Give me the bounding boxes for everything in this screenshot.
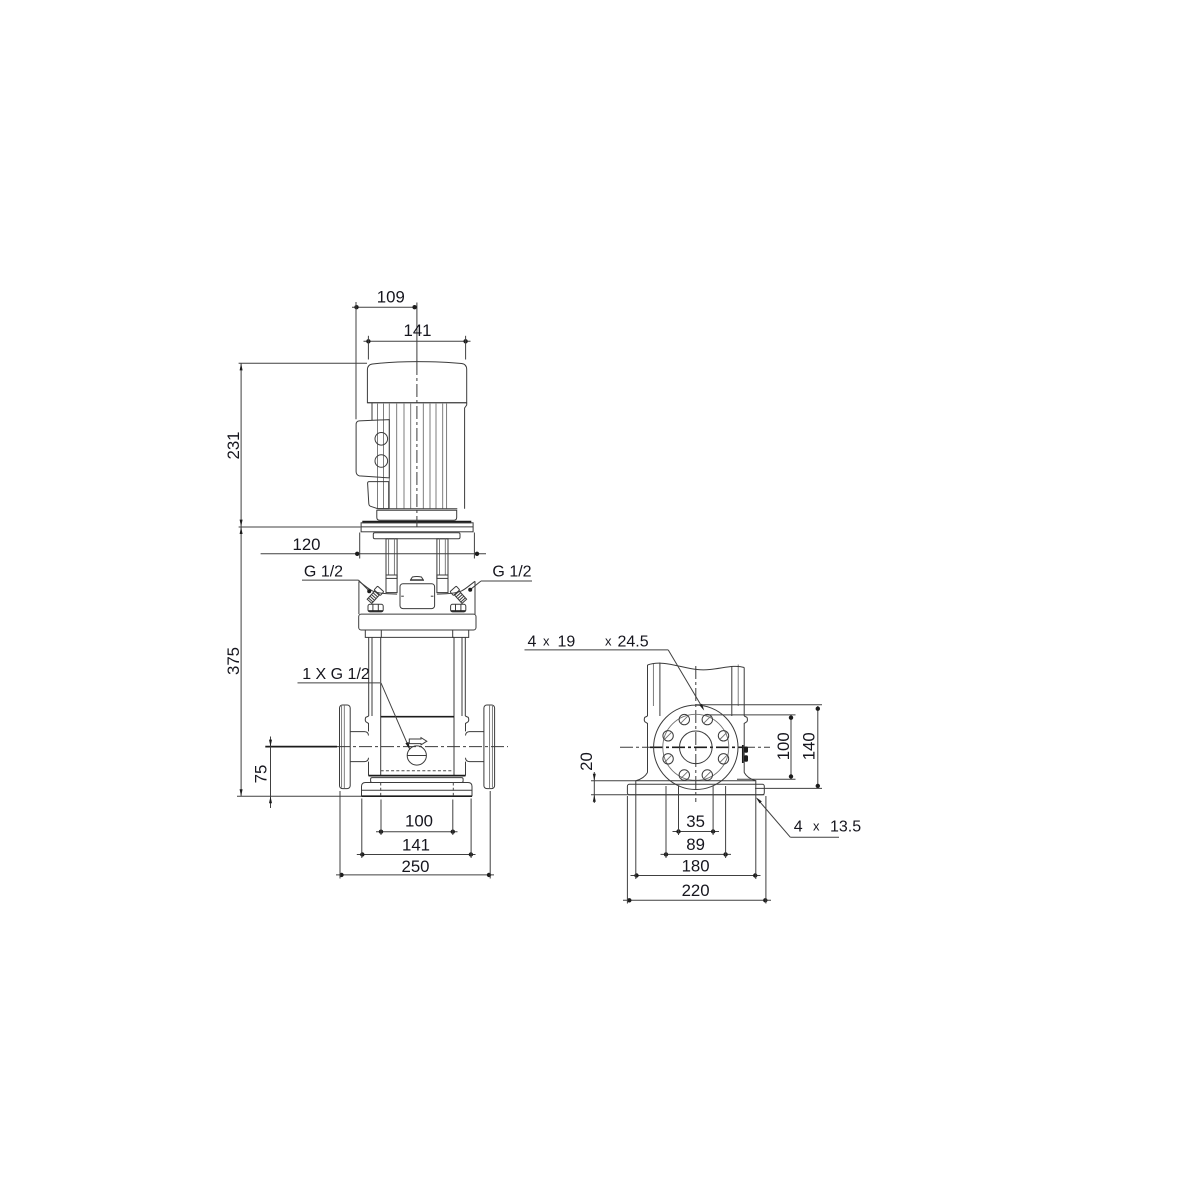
svg-text:13.5: 13.5 [830,819,861,836]
svg-text:100: 100 [774,732,793,760]
svg-text:250: 250 [402,857,430,876]
svg-text:231: 231 [224,432,243,460]
svg-text:x: x [813,819,820,834]
svg-text:89: 89 [686,835,705,854]
svg-text:G 1/2: G 1/2 [492,564,531,581]
svg-text:x: x [543,633,550,648]
svg-text:75: 75 [252,765,271,784]
svg-text:35: 35 [686,812,705,831]
svg-text:140: 140 [800,732,819,760]
svg-text:141: 141 [402,835,430,854]
svg-text:19: 19 [558,633,576,650]
svg-text:4: 4 [794,819,803,836]
svg-text:120: 120 [293,535,321,554]
svg-text:220: 220 [682,881,710,900]
svg-text:x: x [605,633,612,648]
svg-text:141: 141 [404,321,432,340]
svg-text:100: 100 [405,812,433,831]
svg-text:375: 375 [224,647,243,675]
svg-text:24.5: 24.5 [618,633,649,650]
svg-text:109: 109 [377,288,405,307]
svg-text:G 1/2: G 1/2 [304,564,343,581]
svg-text:1 X G 1/2: 1 X G 1/2 [302,666,370,683]
svg-text:20: 20 [577,752,596,771]
svg-text:4: 4 [528,633,537,650]
svg-text:180: 180 [682,856,710,875]
